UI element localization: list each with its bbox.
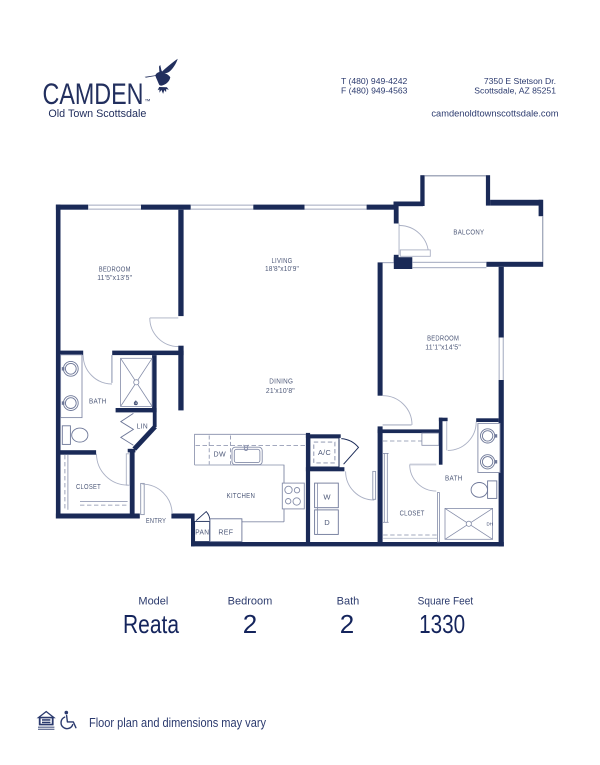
svg-text:W: W [323, 492, 331, 501]
svg-text:DW: DW [214, 449, 227, 458]
svg-text:2: 2 [243, 609, 257, 639]
svg-text:Scottsdale, AZ 85251: Scottsdale, AZ 85251 [474, 86, 556, 96]
svg-text:Bedroom: Bedroom [228, 595, 273, 607]
svg-text:D: D [324, 518, 330, 527]
svg-text:Floor plan and dimensions may: Floor plan and dimensions may vary [89, 716, 267, 730]
svg-text:BEDROOM: BEDROOM [427, 334, 459, 343]
svg-text:PAN: PAN [195, 527, 209, 536]
svg-text:BEDROOM: BEDROOM [99, 264, 131, 273]
svg-text:BATH: BATH [89, 396, 107, 405]
svg-text:REF: REF [218, 527, 233, 536]
svg-text:DH: DH [487, 522, 493, 527]
svg-text:11'1"x14'5": 11'1"x14'5" [425, 343, 461, 352]
svg-text:LIN: LIN [137, 421, 148, 430]
svg-text:Old Town Scottsdale: Old Town Scottsdale [48, 108, 146, 120]
svg-text:CLOSET: CLOSET [76, 482, 101, 491]
svg-text:1330: 1330 [419, 609, 465, 639]
svg-text:Bath: Bath [337, 595, 360, 607]
svg-text:7350 E Stetson Dr.: 7350 E Stetson Dr. [484, 76, 556, 86]
svg-text:BALCONY: BALCONY [453, 227, 484, 236]
svg-text:Reata: Reata [123, 609, 179, 639]
svg-text:F (480) 949-4563: F (480) 949-4563 [341, 86, 408, 96]
svg-text:Model: Model [138, 595, 168, 607]
svg-text:A/C: A/C [318, 448, 331, 457]
svg-text:ENTRY: ENTRY [146, 516, 166, 525]
svg-text:DINING: DINING [269, 377, 293, 386]
svg-text:™: ™ [145, 98, 151, 105]
svg-text:11'5"x13'5": 11'5"x13'5" [97, 273, 132, 282]
svg-text:CLOSET: CLOSET [400, 509, 425, 518]
svg-text:18'8"x10'9": 18'8"x10'9" [265, 264, 299, 273]
svg-text:T (480) 949-4242: T (480) 949-4242 [341, 76, 407, 86]
svg-text:CAMDEN: CAMDEN [43, 78, 144, 111]
svg-text:Square Feet: Square Feet [418, 595, 474, 607]
svg-text:camdenoldtownscottsdale.com: camdenoldtownscottsdale.com [431, 109, 558, 119]
svg-text:KITCHEN: KITCHEN [227, 491, 256, 500]
svg-text:21'x10'8": 21'x10'8" [266, 386, 295, 395]
svg-text:2: 2 [340, 609, 354, 639]
svg-text:BATH: BATH [445, 473, 463, 482]
